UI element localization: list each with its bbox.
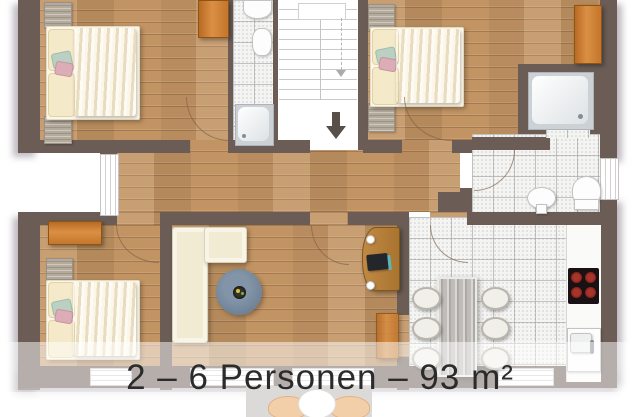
chair xyxy=(412,287,441,310)
washbasin xyxy=(243,0,272,19)
burner xyxy=(585,272,596,283)
toilet-tank xyxy=(574,199,599,210)
wardrobe xyxy=(48,221,102,245)
decor-bowl xyxy=(233,286,246,299)
wardrobe xyxy=(198,0,229,38)
wall-segment xyxy=(100,140,117,154)
l-shaped-sofa xyxy=(204,227,247,263)
stair-divider xyxy=(320,16,321,100)
duvet xyxy=(396,29,460,103)
wall-segment xyxy=(18,0,40,153)
burner xyxy=(571,272,582,283)
wall-segment xyxy=(358,0,368,150)
l-shaped-sofa xyxy=(172,227,208,343)
wardrobe xyxy=(574,5,602,64)
wall-segment xyxy=(363,140,402,153)
shower-drain xyxy=(242,134,246,138)
laptop xyxy=(366,253,389,271)
burner xyxy=(585,287,596,298)
wall-segment xyxy=(460,140,472,150)
wall-toilet xyxy=(252,28,272,56)
lower-floor-chair xyxy=(330,396,370,417)
hallway-threshold xyxy=(117,212,160,225)
bedside-mat xyxy=(368,104,395,132)
hallway-threshold xyxy=(310,212,348,225)
wall-segment xyxy=(438,192,472,212)
down-arrow-icon xyxy=(326,126,346,139)
pillow xyxy=(48,73,75,117)
window xyxy=(600,158,619,200)
stair-direction-arrow-icon xyxy=(336,70,346,77)
decor-dot xyxy=(236,289,240,293)
floor-plan: 2 – 6 Personen – 93 m² xyxy=(0,0,640,417)
window xyxy=(100,154,119,216)
stair-landing xyxy=(298,3,346,20)
duvet xyxy=(74,28,136,116)
wall-segment xyxy=(472,137,550,150)
cushion xyxy=(54,61,74,78)
burner xyxy=(571,287,582,298)
wall-segment xyxy=(160,212,310,225)
bedside-mat xyxy=(44,116,72,144)
sink-pedestal xyxy=(536,204,547,214)
pillow xyxy=(372,67,399,105)
chair xyxy=(481,287,510,310)
chair xyxy=(481,317,510,340)
cup xyxy=(366,281,375,290)
decor-dot xyxy=(241,292,244,295)
cup xyxy=(366,235,375,244)
caption-text: 2 – 6 Personen – 93 m² xyxy=(0,360,640,395)
wall-segment xyxy=(600,0,617,158)
bedside-mat xyxy=(44,2,72,28)
shower-drain xyxy=(578,114,583,119)
stair-guide-line xyxy=(341,18,342,70)
chair xyxy=(412,317,441,340)
